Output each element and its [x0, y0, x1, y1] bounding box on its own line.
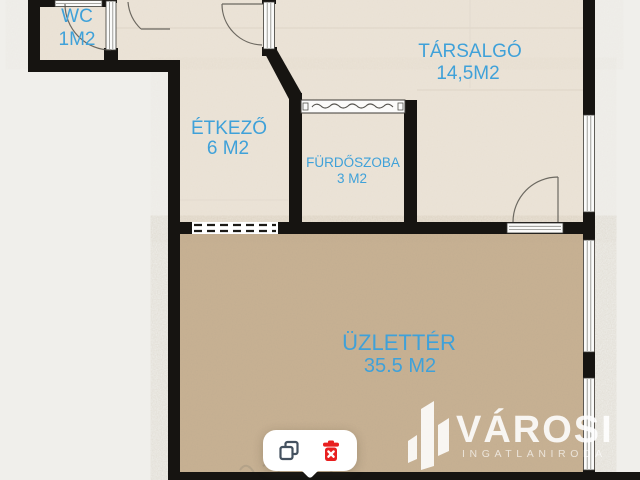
wc-area-label: 1M2 — [59, 29, 96, 50]
wc-room-label: WC — [61, 6, 93, 27]
agency-logo-name: VÁROSI — [456, 407, 614, 451]
floorplan-screenshot: WC 1M2 TÁRSALGÓ 14,5M2 ÉTKEZŐ 6 M2 FÜRDŐ… — [0, 0, 640, 480]
action-toolbar — [263, 430, 357, 471]
tarsalgo-area-label: 14,5M2 — [436, 63, 499, 84]
tarsalgo-window — [584, 115, 595, 212]
copy-button[interactable] — [274, 436, 304, 466]
uzletter-room-label: ÜZLETTÉR — [342, 330, 456, 355]
furdoszoba-area-label: 3 M2 — [337, 171, 367, 186]
shop-window-upper — [584, 240, 595, 352]
trash-icon — [320, 440, 342, 462]
copy-icon — [278, 440, 300, 462]
agency-logo-subtitle: INGATLANIRODA — [462, 448, 607, 460]
furdoszoba-room-label: FÜRDŐSZOBA — [306, 155, 400, 170]
bathroom-window — [301, 100, 405, 113]
wc-door-jamb — [106, 1, 116, 50]
etkezo-area-label: 6 M2 — [207, 138, 249, 159]
etkezo-room-label: ÉTKEZŐ — [191, 117, 267, 139]
tarsalgo-door-jamb — [507, 223, 563, 233]
delete-button[interactable] — [316, 436, 346, 466]
tarsalgo-room-label: TÁRSALGÓ — [418, 40, 521, 62]
etkezo-door-jamb — [264, 2, 275, 49]
uzletter-area-label: 35.5 M2 — [364, 355, 436, 377]
floorplan-drawing: WC 1M2 TÁRSALGÓ 14,5M2 ÉTKEZŐ 6 M2 FÜRDŐ… — [0, 0, 640, 480]
passage-opening — [192, 222, 278, 234]
